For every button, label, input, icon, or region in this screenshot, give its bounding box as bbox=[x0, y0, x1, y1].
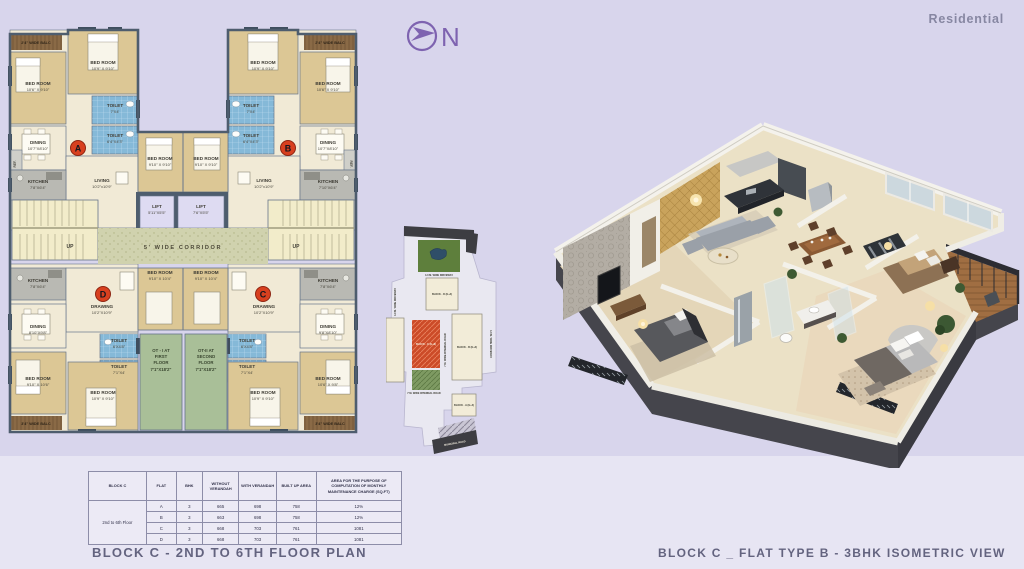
room-dims: 9'8"X8'10" bbox=[319, 330, 338, 335]
room-dims: 6'X4'8" bbox=[113, 344, 126, 349]
table-cell: 698 bbox=[239, 512, 276, 523]
table-cell: 703 bbox=[239, 534, 276, 545]
north-letter: N bbox=[441, 22, 460, 52]
table-cell: 3 bbox=[176, 501, 202, 512]
site-road-label: 4.0 M. WIDE DRIVEWAY bbox=[425, 274, 453, 277]
table-header-cell: AREA FOR THE PURPOSE OF COMPUTATION OF M… bbox=[316, 472, 401, 501]
room-dims: 10'2"x10'9" bbox=[254, 184, 274, 189]
room-dims: 7'X4' bbox=[247, 109, 256, 114]
room-dims: 7'1"X4' bbox=[241, 370, 254, 375]
table-cell: 3 bbox=[176, 523, 202, 534]
table-header-cell: WITH VERANDAH bbox=[239, 472, 276, 501]
ot-label: 7'1"X18'2" bbox=[196, 367, 217, 372]
north-arrow: N bbox=[403, 14, 473, 58]
table-cell: C bbox=[146, 523, 176, 534]
room-dims: 6'X4'8" bbox=[241, 344, 254, 349]
ref-label: REF. bbox=[13, 160, 17, 167]
table-cell: 12% bbox=[316, 501, 401, 512]
room-label: BED ROOM bbox=[315, 376, 340, 381]
room-dims: 9'10" X 10'4" bbox=[149, 276, 172, 281]
room-label: LIFT bbox=[152, 204, 162, 209]
isometric-view bbox=[546, 116, 1024, 468]
table-cell: 761 bbox=[276, 534, 316, 545]
table-cell: 2nd to 6th Floor bbox=[89, 501, 147, 545]
table-cell: 758 bbox=[276, 501, 316, 512]
room-label: BED ROOM bbox=[193, 156, 218, 161]
balcony-label: 2'4" WIDE BALC bbox=[315, 41, 345, 45]
room-label: BED ROOM bbox=[147, 270, 172, 275]
room-label: TOILET bbox=[239, 364, 255, 369]
ot-label: OT - I AT bbox=[152, 348, 170, 353]
site-road-label: 4.0 M. WIDE DRIVEWAY bbox=[489, 330, 492, 358]
room-label: TOILET bbox=[111, 364, 127, 369]
table-cell: 758 bbox=[276, 512, 316, 523]
room-label: BED ROOM bbox=[25, 81, 50, 86]
room-dims: 9'10" X 10'6" bbox=[27, 382, 50, 387]
room-label: DINING bbox=[30, 324, 47, 329]
corridor-label: 5' WIDE CORRIDOR bbox=[144, 245, 222, 251]
table-cell: A bbox=[146, 501, 176, 512]
table-cell: 703 bbox=[239, 523, 276, 534]
table-cell: 663 bbox=[202, 512, 239, 523]
room-dims: 6'4"X4'3" bbox=[107, 139, 124, 144]
table-cell: 668 bbox=[202, 534, 239, 545]
table-header-cell: WITHOUT VERANDAH bbox=[202, 472, 239, 501]
flat-marker-b: B bbox=[285, 144, 292, 154]
room-label: TOILET bbox=[243, 133, 259, 138]
room-label: KITCHEN bbox=[28, 278, 49, 283]
room-dims: 10'9" X 9'10" bbox=[252, 396, 275, 401]
room-label: KITCHEN bbox=[28, 179, 49, 184]
room-dims: 5'11"X5'5" bbox=[148, 210, 166, 215]
room-label: BED ROOM bbox=[90, 390, 115, 395]
room-dims: 10'6" X 9'10" bbox=[317, 87, 340, 92]
room-label: TOILET bbox=[107, 133, 123, 138]
room-label: LIFT bbox=[196, 204, 206, 209]
room-label: KITCHEN bbox=[318, 179, 339, 184]
room-label: DRAWING bbox=[253, 304, 276, 309]
room-label: DINING bbox=[30, 140, 47, 145]
room-dims: 9'10" X 9'10" bbox=[195, 162, 218, 167]
ot-label: OT-II AT bbox=[198, 348, 214, 353]
room-label: KITCHEN bbox=[318, 278, 339, 283]
floor-plan: 2'4" WIDE BALC 2'4" WIDE BALC BED ROOM 1… bbox=[8, 22, 370, 448]
room-dims: 9'10" X 9'10" bbox=[149, 162, 172, 167]
room-label: BED ROOM bbox=[250, 390, 275, 395]
room-dims: 8'10"X9'8" bbox=[29, 330, 48, 335]
balcony-label: 2'4" WIDE BALC bbox=[21, 41, 51, 45]
ot-label: 7'1"X18'2" bbox=[151, 367, 172, 372]
table-cell: 3 bbox=[176, 534, 202, 545]
brochure-page: Residential N bbox=[0, 0, 1024, 569]
up-label: UP bbox=[67, 244, 75, 250]
room-dims: 10'2"X10'9" bbox=[254, 310, 275, 315]
room-label: TOILET bbox=[111, 338, 127, 343]
table-header-cell: BUILT UP AREA bbox=[276, 472, 316, 501]
room-dims: 7'6"X5'5" bbox=[193, 210, 210, 215]
room-label: BED ROOM bbox=[147, 156, 172, 161]
room-label: TOILET bbox=[243, 103, 259, 108]
room-label: BED ROOM bbox=[25, 376, 50, 381]
room-label: BED ROOM bbox=[90, 60, 115, 65]
site-block-label: BLOCK - D (G+4) bbox=[432, 293, 452, 296]
site-road-label: 4.0 M. WIDE DRIVEWAY bbox=[394, 288, 397, 316]
room-dims: 9'10" X 10'4" bbox=[195, 276, 218, 281]
table-cell: 698 bbox=[239, 501, 276, 512]
table-cell: 668 bbox=[202, 523, 239, 534]
north-compass-icon bbox=[408, 22, 436, 50]
table-header-cell: BLOCK C bbox=[89, 472, 147, 501]
room-dims: 10'7"X8'10" bbox=[318, 146, 339, 151]
room-label: BED ROOM bbox=[193, 270, 218, 275]
isometric-title: BLOCK C _ FLAT TYPE B - 3BHK ISOMETRIC V… bbox=[658, 546, 1006, 560]
balcony-label: 3'4" WIDE BALC bbox=[315, 422, 345, 426]
room-dims: 10'9" X 9'10" bbox=[252, 66, 275, 71]
table-row: 2nd to 6th Floor A 3 665 698 758 12% bbox=[89, 501, 402, 512]
room-label: DINING bbox=[320, 140, 337, 145]
ot-label: SECOND bbox=[197, 354, 215, 359]
table-cell: 1081 bbox=[316, 534, 401, 545]
table-cell: 3 bbox=[176, 512, 202, 523]
floor-plan-title: BLOCK C - 2ND TO 6TH FLOOR PLAN bbox=[92, 545, 367, 560]
room-dims: 10'6" X 9'8" bbox=[318, 382, 339, 387]
room-dims: 10'2"x10'9" bbox=[92, 184, 112, 189]
room-dims: 7'10"X6'4" bbox=[319, 185, 338, 190]
room-dims: 7'1"X4' bbox=[113, 370, 126, 375]
room-dims: 10'9" X 9'10" bbox=[92, 396, 115, 401]
room-dims: 10'2"X10'9" bbox=[92, 310, 113, 315]
residential-tag: Residential bbox=[929, 12, 1005, 26]
ot-label: FLOOR bbox=[198, 360, 214, 365]
flat-marker-c: C bbox=[260, 290, 267, 300]
room-label: TOILET bbox=[107, 103, 123, 108]
table-cell: 761 bbox=[276, 523, 316, 534]
room-label: BED ROOM bbox=[250, 60, 275, 65]
site-key-plan: BLOCK - D (G+4) BLOCK - C (G+6) BLOCK - … bbox=[386, 222, 508, 466]
site-road-label: 7 M. WIDE INTERNAL ROAD bbox=[444, 333, 447, 367]
table-cell: D bbox=[146, 534, 176, 545]
room-dims: 10'9" X 9'10" bbox=[92, 66, 115, 71]
table-header-cell: BHK bbox=[176, 472, 202, 501]
site-block-label: BLOCK - C (G+6) bbox=[416, 343, 436, 346]
site-block-label: BLOCK - B (G+4) bbox=[457, 346, 477, 349]
room-label: LIVING bbox=[256, 178, 272, 183]
table-cell: 1081 bbox=[316, 523, 401, 534]
flat-marker-a: A bbox=[75, 144, 82, 154]
ot-label: FIRST bbox=[155, 354, 168, 359]
room-label: DINING bbox=[320, 324, 337, 329]
room-label: LIVING bbox=[94, 178, 110, 183]
table-cell: 665 bbox=[202, 501, 239, 512]
flat-marker-d: D bbox=[100, 290, 107, 300]
room-dims: 10'7"X8'10" bbox=[28, 146, 49, 151]
room-label: DRAWING bbox=[91, 304, 114, 309]
table-cell: B bbox=[146, 512, 176, 523]
ref-label: REF. bbox=[349, 161, 353, 168]
room-label: BED ROOM bbox=[315, 81, 340, 86]
site-block-label: BLOCK - A (G+4) bbox=[454, 404, 474, 407]
room-dims: 6'4"X4'3" bbox=[243, 139, 260, 144]
ot-label: FLOOR bbox=[153, 360, 169, 365]
room-dims: 7'8"X6'4" bbox=[320, 284, 337, 289]
area-table: BLOCK C FLAT BHK WITHOUT VERANDAH WITH V… bbox=[88, 471, 402, 545]
balcony-label: 3'4" WIDE BALC bbox=[21, 422, 51, 426]
room-dims: 7'8"X6'4" bbox=[30, 185, 47, 190]
room-dims: 7'X4' bbox=[111, 109, 120, 114]
room-dims: 7'8"X6'4" bbox=[30, 284, 47, 289]
table-header-cell: FLAT bbox=[146, 472, 176, 501]
site-road-label: 7 M. WIDE INTERNAL ROAD bbox=[407, 392, 441, 395]
up-label: UP bbox=[293, 244, 301, 250]
table-cell: 12% bbox=[316, 512, 401, 523]
room-dims: 10'6" X 9'10" bbox=[27, 87, 50, 92]
room-label: TOILET bbox=[239, 338, 255, 343]
